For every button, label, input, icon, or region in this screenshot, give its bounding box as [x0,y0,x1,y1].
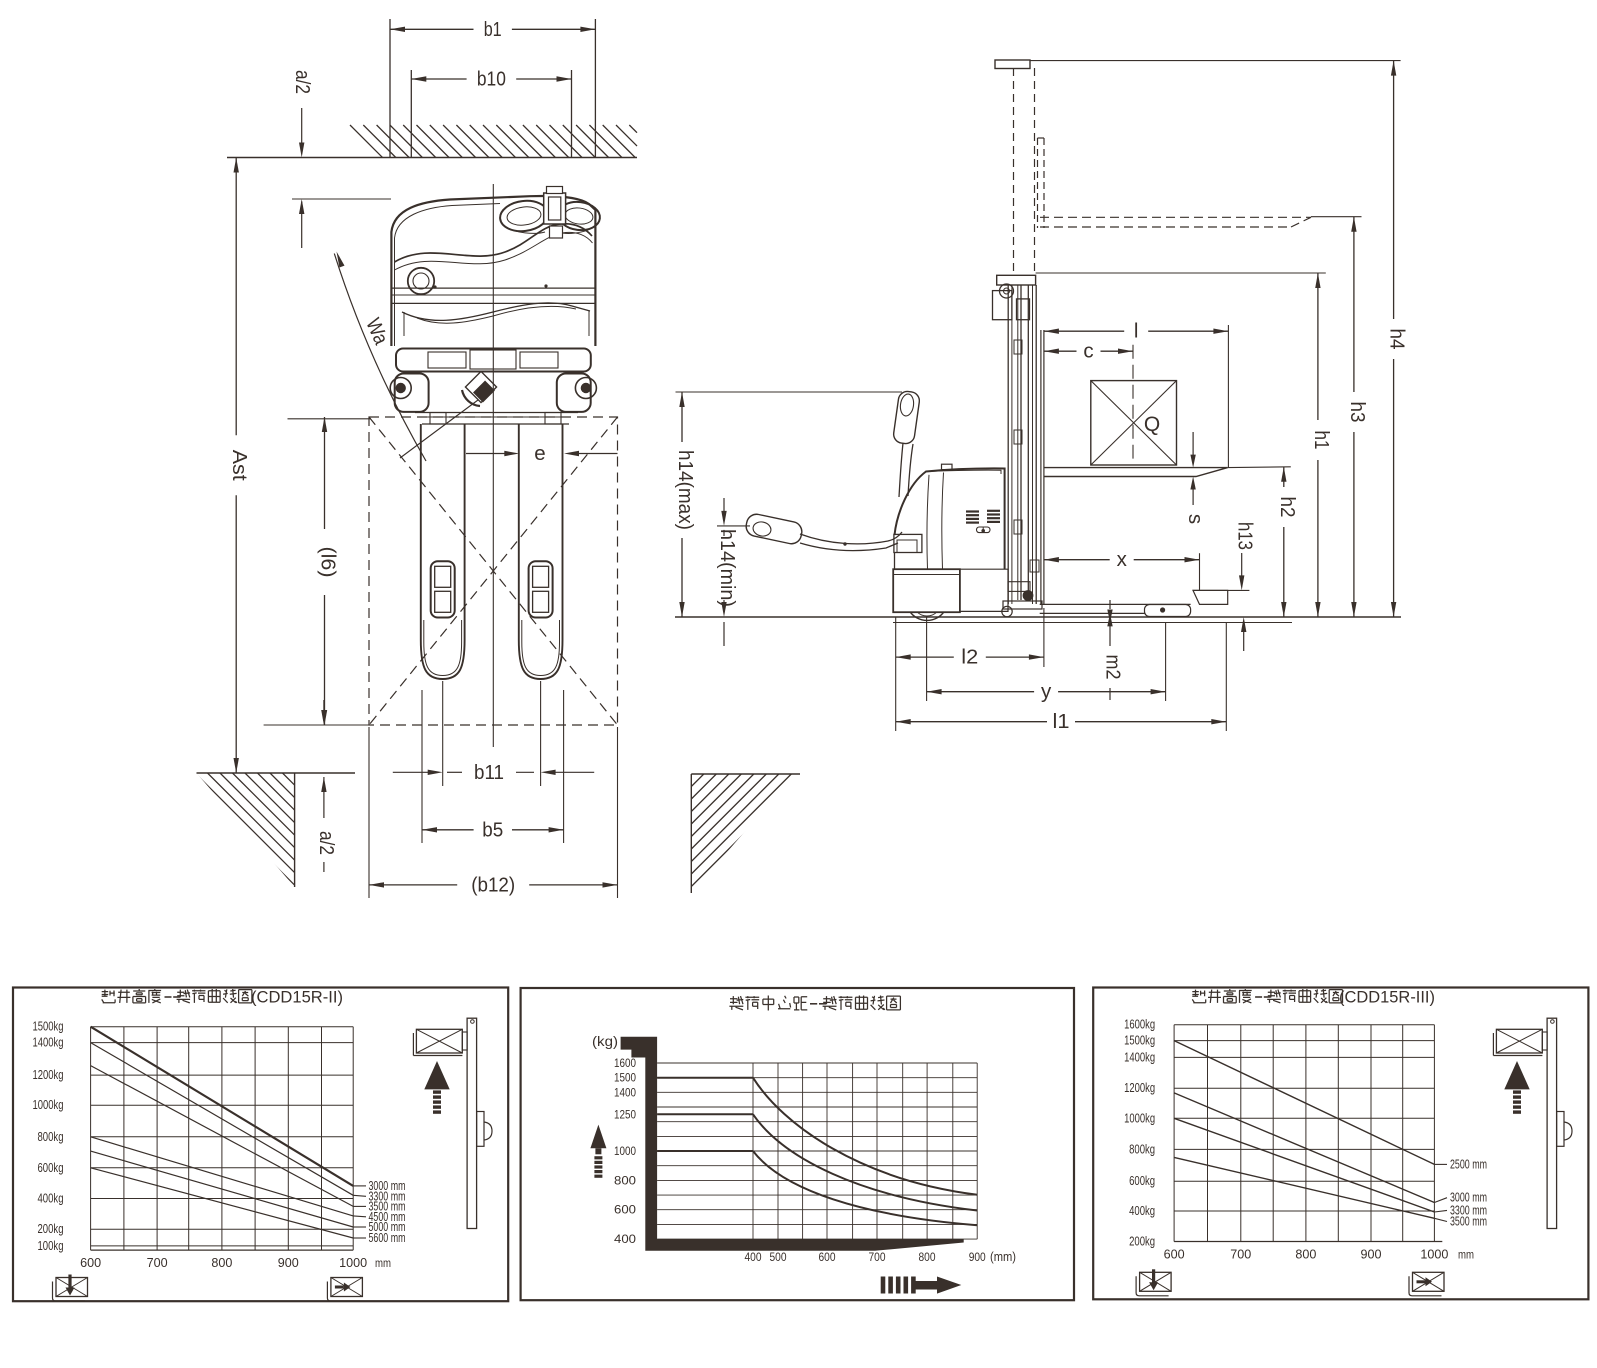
svg-text:200kg: 200kg [1129,1235,1155,1249]
svg-text:(l6): (l6) [317,547,340,578]
svg-text:l: l [1134,320,1139,343]
svg-text:s: s [1184,514,1207,524]
svg-text:y: y [1041,680,1052,703]
svg-text:c: c [1083,340,1093,363]
svg-text:2500 mm: 2500 mm [1450,1157,1487,1171]
svg-text:a/2: a/2 [315,831,338,855]
svg-text:700: 700 [869,1252,886,1264]
svg-text:5600 mm: 5600 mm [369,1231,406,1245]
svg-text:800: 800 [1295,1247,1316,1261]
svg-text:l2: l2 [961,646,978,669]
svg-text:b11: b11 [474,761,504,784]
svg-text:1500kg: 1500kg [1124,1034,1155,1048]
svg-text:400kg: 400kg [1129,1204,1155,1218]
svg-text:1400kg: 1400kg [1124,1050,1155,1064]
svg-text:1500kg: 1500kg [33,1020,64,1034]
svg-text:1000: 1000 [339,1256,367,1270]
svg-text:1000kg: 1000kg [33,1098,64,1112]
svg-text:1250: 1250 [614,1107,636,1121]
svg-text:h14(min): h14(min) [716,529,739,607]
svg-text:1500: 1500 [614,1071,636,1085]
svg-text:h4: h4 [1386,329,1409,350]
svg-text:1000kg: 1000kg [1124,1111,1155,1125]
svg-text:600: 600 [1164,1247,1185,1261]
svg-text:900: 900 [1361,1247,1382,1261]
svg-text:400kg: 400kg [38,1192,64,1206]
svg-text:700: 700 [1230,1247,1251,1261]
svg-text:h3: h3 [1346,402,1369,423]
svg-text:1200kg: 1200kg [33,1068,64,1082]
svg-text:600: 600 [80,1256,101,1270]
svg-text:800kg: 800kg [1129,1142,1155,1156]
svg-text:700: 700 [147,1256,168,1270]
svg-text:1600: 1600 [614,1056,636,1070]
svg-text:400: 400 [745,1252,762,1264]
svg-text:l1: l1 [1053,710,1070,733]
svg-text:100kg: 100kg [38,1239,64,1253]
svg-text:900: 900 [969,1252,986,1264]
svg-text:600kg: 600kg [1129,1174,1155,1188]
svg-text:800: 800 [919,1252,936,1264]
svg-text:(mm): (mm) [990,1250,1016,1264]
svg-text:x: x [1117,548,1128,571]
svg-text:(b12): (b12) [471,873,515,896]
svg-text:1600kg: 1600kg [1124,1018,1155,1032]
svg-text:500: 500 [770,1252,787,1264]
svg-text:1000: 1000 [614,1144,636,1158]
svg-text:h13: h13 [1234,522,1257,550]
svg-text:e: e [534,442,545,465]
svg-text:600kg: 600kg [38,1161,64,1175]
svg-text:(CDD15R-III): (CDD15R-III) [1339,989,1435,1007]
svg-text:800: 800 [614,1173,636,1187]
svg-text:3500 mm: 3500 mm [1450,1215,1487,1229]
svg-text:m2: m2 [1102,655,1125,680]
svg-text:(CDD15R-II): (CDD15R-II) [251,989,343,1007]
svg-text:Ast: Ast [228,450,251,481]
svg-text:1000: 1000 [1420,1247,1448,1261]
svg-text:h1: h1 [1310,431,1333,450]
svg-text:b5: b5 [482,818,503,841]
svg-text:900: 900 [278,1256,299,1270]
svg-text:mm: mm [1458,1247,1474,1261]
svg-text:mm: mm [375,1256,391,1270]
svg-text:800: 800 [211,1256,232,1270]
svg-text:200kg: 200kg [38,1222,64,1236]
svg-text:h14(max): h14(max) [674,450,697,530]
svg-text:600: 600 [614,1203,636,1217]
svg-text:a/2: a/2 [291,70,314,94]
svg-text:b1: b1 [484,18,502,41]
svg-text:400: 400 [614,1232,636,1246]
svg-text:600: 600 [819,1252,836,1264]
svg-text:800kg: 800kg [38,1130,64,1144]
svg-text:1200kg: 1200kg [1124,1081,1155,1095]
svg-text:h2: h2 [1276,497,1299,518]
svg-text:1400kg: 1400kg [33,1036,64,1050]
svg-text:b10: b10 [477,68,506,91]
svg-text:(kg): (kg) [592,1033,618,1049]
svg-text:Q: Q [1144,413,1160,436]
svg-text:1400: 1400 [614,1085,636,1099]
